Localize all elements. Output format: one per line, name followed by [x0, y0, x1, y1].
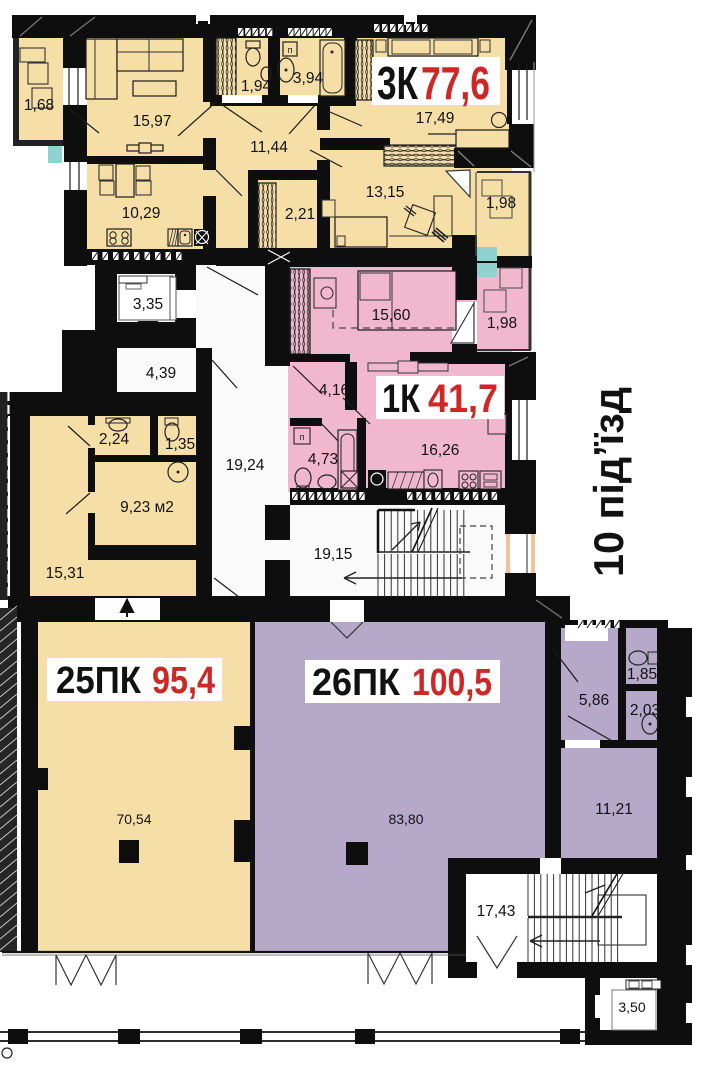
svg-text:10 під’їзд: 10 під’їзд: [585, 387, 632, 577]
svg-text:17,43: 17,43: [477, 903, 516, 920]
svg-text:1К: 1К: [382, 377, 420, 421]
svg-text:1,85: 1,85: [627, 666, 657, 683]
svg-text:3,35: 3,35: [133, 296, 163, 313]
svg-text:15,97: 15,97: [133, 113, 172, 130]
svg-text:1,35: 1,35: [165, 436, 195, 453]
svg-text:17,49: 17,49: [416, 110, 455, 127]
svg-text:83,80: 83,80: [388, 811, 423, 827]
svg-text:11,21: 11,21: [595, 801, 633, 818]
svg-text:1,68: 1,68: [24, 97, 54, 114]
svg-text:2,03: 2,03: [630, 702, 660, 719]
svg-text:3,94: 3,94: [293, 70, 324, 87]
svg-text:16,26: 16,26: [421, 442, 460, 459]
svg-text:26ПК: 26ПК: [312, 662, 401, 704]
svg-text:15,31: 15,31: [46, 565, 85, 582]
svg-text:п: п: [288, 45, 293, 55]
svg-text:4,16: 4,16: [319, 382, 349, 399]
svg-text:10,29: 10,29: [122, 205, 161, 222]
svg-text:19,15: 19,15: [314, 546, 353, 563]
svg-text:70,54: 70,54: [116, 811, 151, 827]
svg-text:5,86: 5,86: [579, 692, 609, 709]
svg-text:2,21: 2,21: [285, 206, 315, 223]
svg-text:95,4: 95,4: [152, 660, 215, 702]
svg-text:3К: 3К: [377, 57, 419, 109]
svg-text:11,44: 11,44: [250, 139, 288, 156]
svg-text:4,39: 4,39: [146, 365, 176, 382]
svg-text:2,24: 2,24: [99, 431, 130, 448]
svg-text:19,24: 19,24: [226, 457, 265, 474]
svg-text:1,98: 1,98: [486, 195, 516, 212]
svg-text:13,15: 13,15: [366, 184, 405, 201]
svg-text:п: п: [300, 432, 305, 442]
svg-text:100,5: 100,5: [412, 662, 492, 704]
svg-text:4,73: 4,73: [308, 451, 338, 468]
svg-text:41,7: 41,7: [428, 377, 498, 421]
svg-text:15,60: 15,60: [372, 307, 411, 324]
svg-text:3,50: 3,50: [618, 999, 645, 1015]
svg-text:25ПК: 25ПК: [56, 660, 142, 702]
svg-text:9,23 м2: 9,23 м2: [120, 499, 174, 516]
svg-text:77,6: 77,6: [421, 57, 490, 109]
svg-text:1,98: 1,98: [487, 315, 517, 332]
svg-text:1,94: 1,94: [241, 78, 272, 95]
